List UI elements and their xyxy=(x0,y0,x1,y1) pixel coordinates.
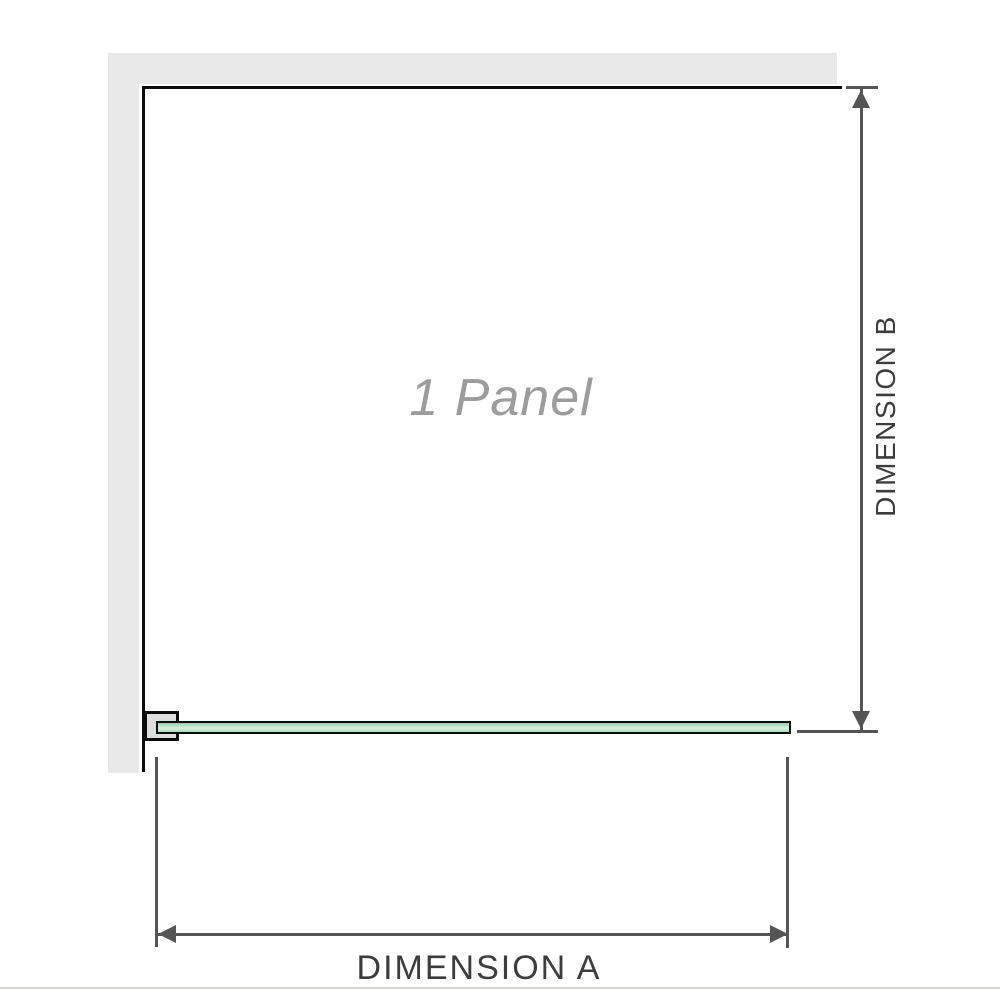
footer-rule xyxy=(0,987,1000,989)
wall-edge-left-line xyxy=(142,86,145,772)
wall-edge-top-line xyxy=(142,86,842,89)
dimension-b-line xyxy=(860,88,863,731)
dimension-a-label: DIMENSION A xyxy=(229,948,729,988)
dimension-a-right-extension-line xyxy=(786,757,789,948)
wall-left xyxy=(108,53,139,773)
arrow-up-icon xyxy=(852,90,870,108)
arrow-left-icon xyxy=(158,925,176,943)
shower-panel-dimension-diagram: 1 Panel DIMENSION B DIMENSION A xyxy=(0,0,1000,1000)
glass-panel xyxy=(156,721,791,734)
arrow-down-icon xyxy=(852,711,870,729)
dimension-b-bottom-tick xyxy=(797,730,878,733)
dimension-b-label: DIMENSION B xyxy=(866,266,906,566)
dimension-a-line xyxy=(158,933,788,936)
wall-top xyxy=(108,53,837,84)
dimension-a-left-extension-line xyxy=(155,757,158,947)
panel-count-label: 1 Panel xyxy=(151,368,851,428)
arrow-right-icon xyxy=(770,925,788,943)
